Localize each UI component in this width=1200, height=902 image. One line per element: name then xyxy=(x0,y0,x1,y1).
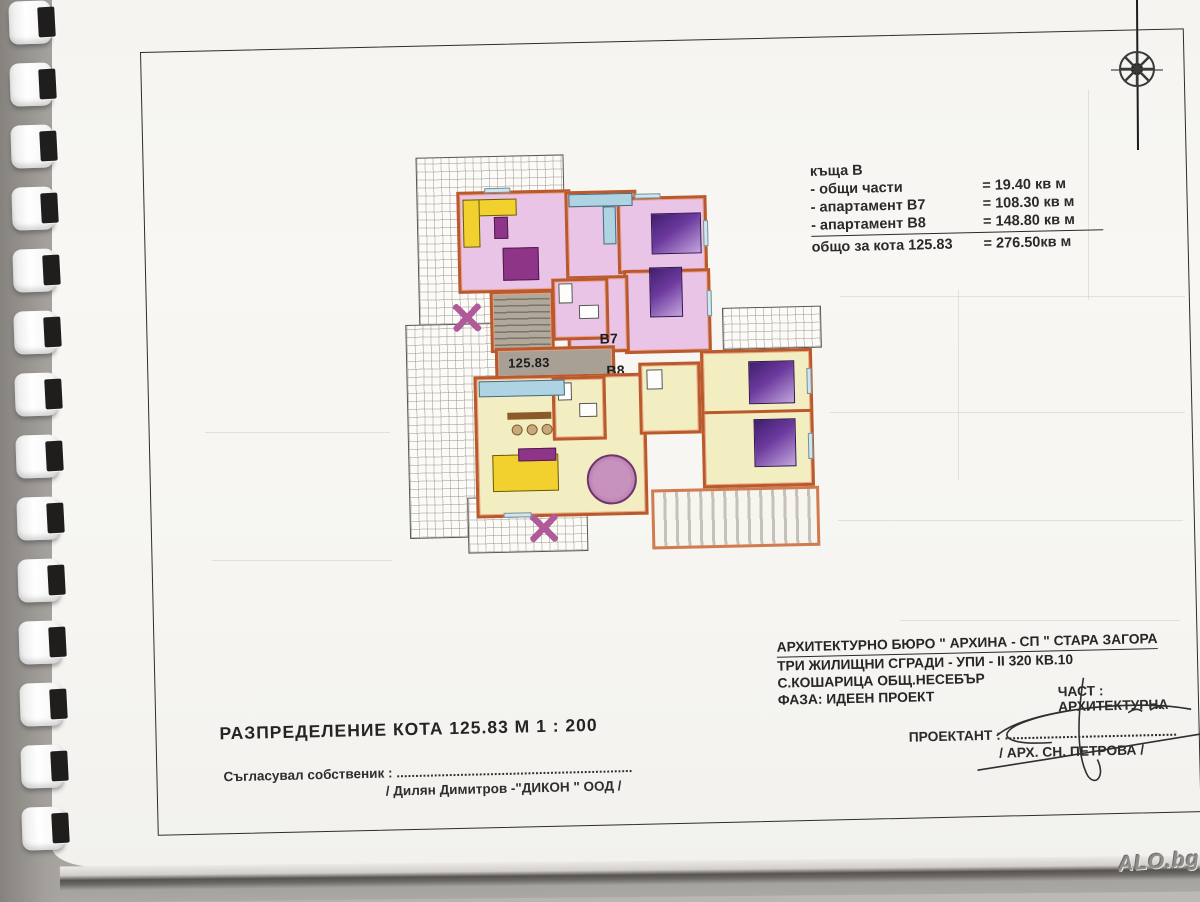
b7-kitchen-counter-2 xyxy=(603,206,617,244)
b7-dining-table xyxy=(503,247,540,281)
area-total-row: общо за кота 125.83 = 276.50кв м xyxy=(811,233,1103,256)
signature xyxy=(845,668,1200,802)
binding-hole xyxy=(51,813,70,844)
area-row: - апартамент В8 = 148.80 кв м xyxy=(811,211,1103,237)
binding-hole xyxy=(40,193,59,224)
binding-hole xyxy=(45,441,64,472)
terrace-table xyxy=(530,514,559,543)
binding-hole xyxy=(47,565,66,596)
area-label: - апартамент В8 xyxy=(811,214,983,234)
window xyxy=(504,512,532,518)
area-total-value: = 276.50кв м xyxy=(983,234,1071,252)
window xyxy=(808,433,814,459)
owner-name: / Дилян Димитров -"ДИКОН " ООД / xyxy=(386,778,622,798)
b8-kitchen-counter xyxy=(479,379,565,397)
binding-hole xyxy=(49,689,68,720)
b8-coffee-table xyxy=(518,448,556,462)
b7-armchair xyxy=(494,217,508,239)
b7-bed-2 xyxy=(649,267,683,318)
b7-sofa-side xyxy=(462,199,480,247)
window xyxy=(806,368,812,394)
area-table: къща В - общи части = 19.40 кв м - апарт… xyxy=(810,157,1104,256)
b7-kitchen-counter xyxy=(568,193,632,207)
binding-hole xyxy=(46,503,65,534)
window xyxy=(484,188,510,194)
terrace-table xyxy=(453,303,482,332)
drawing-title: РАЗПРЕДЕЛЕНИЕ КОТА 125.83 М 1 : 200 xyxy=(219,715,598,745)
b7-bed-1 xyxy=(651,212,702,254)
window xyxy=(634,193,660,199)
sink-fixture xyxy=(579,403,597,417)
area-total-label: общо за кота 125.83 xyxy=(811,236,983,256)
terrace-right xyxy=(722,306,822,350)
binding-hole xyxy=(39,131,58,162)
binding-hole xyxy=(44,379,63,410)
binding-hole xyxy=(48,627,67,658)
scanned-floor-plan-page: { "area_table": { "title": "къща В", "ro… xyxy=(0,0,1200,897)
binding-hole xyxy=(42,255,61,286)
area-value: = 19.40 кв м xyxy=(982,176,1066,194)
area-value: = 108.30 кв м xyxy=(982,194,1074,212)
area-label: - общи части xyxy=(810,178,982,198)
stairwell xyxy=(490,290,555,353)
binding-hole xyxy=(38,69,57,100)
area-label: - апартамент В7 xyxy=(811,196,983,216)
window xyxy=(707,290,713,316)
b8-kitchen-bar xyxy=(507,412,551,420)
toilet-fixture xyxy=(646,369,662,389)
window xyxy=(703,220,709,246)
binding-hole xyxy=(43,317,62,348)
apartment-b7-label: B7 xyxy=(599,330,618,346)
toilet-fixture xyxy=(558,283,572,303)
b8-bed-1 xyxy=(748,360,795,404)
drawing-frame: 125.83 B7 B8 xyxy=(140,28,1200,835)
sink-fixture xyxy=(579,305,599,319)
binding-hole xyxy=(37,7,56,38)
area-value: = 148.80 кв м xyxy=(983,212,1075,230)
elevation-label: 125.83 xyxy=(508,355,550,371)
binding-hole xyxy=(50,751,69,782)
b8-bed-2 xyxy=(753,418,796,467)
pergola-deck xyxy=(651,486,820,550)
